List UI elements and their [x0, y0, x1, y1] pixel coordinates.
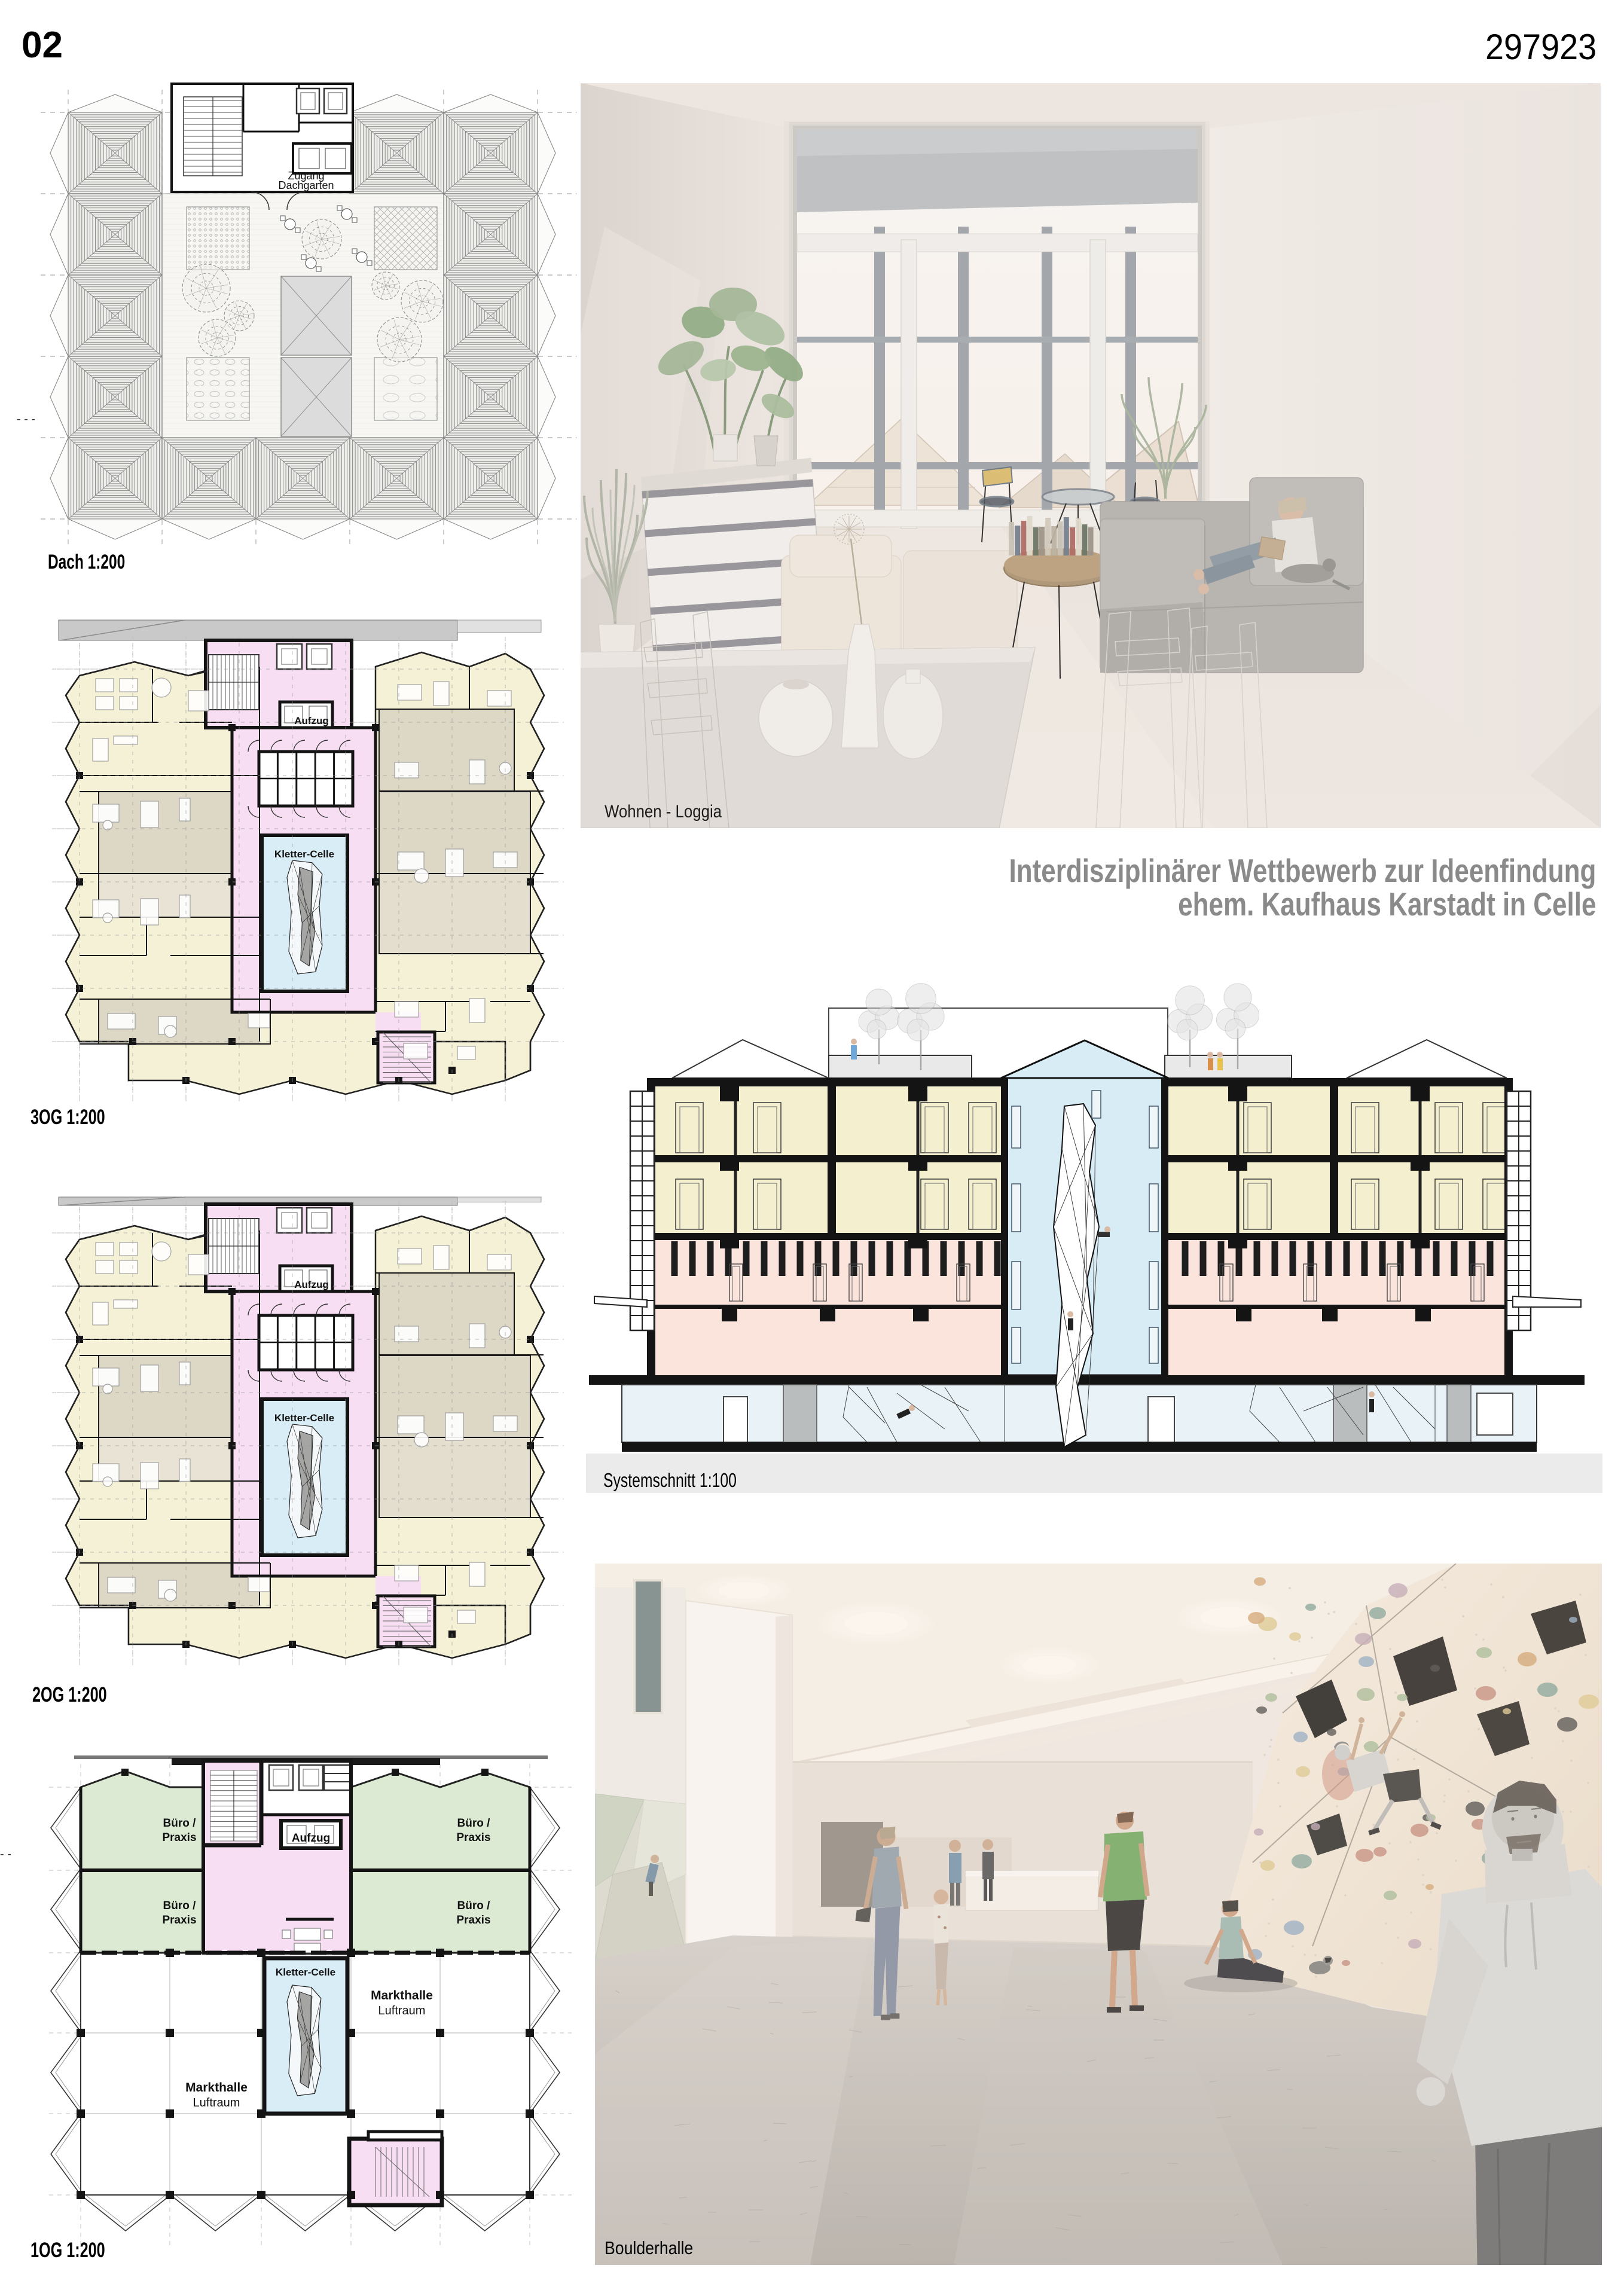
svg-text:Praxis: Praxis [456, 1831, 490, 1844]
svg-text:Kletter-Celle: Kletter-Celle [274, 848, 334, 860]
svg-text:Büro /: Büro / [163, 1900, 197, 1912]
svg-text:Aufzug: Aufzug [294, 715, 329, 726]
svg-text:Praxis: Praxis [162, 1831, 196, 1844]
svg-text:Praxis: Praxis [162, 1914, 196, 1926]
svg-text:Luftraum: Luftraum [193, 2096, 240, 2109]
svg-text:Kletter-Celle: Kletter-Celle [274, 1412, 334, 1424]
svg-text:Markthalle: Markthalle [185, 2081, 248, 2095]
svg-text:Aufzug: Aufzug [292, 1832, 330, 1845]
svg-text:Aufzug: Aufzug [294, 1279, 329, 1290]
svg-text:Praxis: Praxis [456, 1914, 490, 1926]
svg-text:Luftraum: Luftraum [378, 2004, 426, 2017]
svg-text:Kletter-Celle: Kletter-Celle [276, 1967, 335, 1978]
svg-text:Markthalle: Markthalle [371, 1989, 433, 2002]
svg-text:Büro /: Büro / [163, 1817, 197, 1830]
svg-text:Büro /: Büro / [457, 1900, 491, 1912]
svg-text:Dachgarten: Dachgarten [278, 179, 334, 191]
svg-text:Büro /: Büro / [457, 1817, 491, 1830]
